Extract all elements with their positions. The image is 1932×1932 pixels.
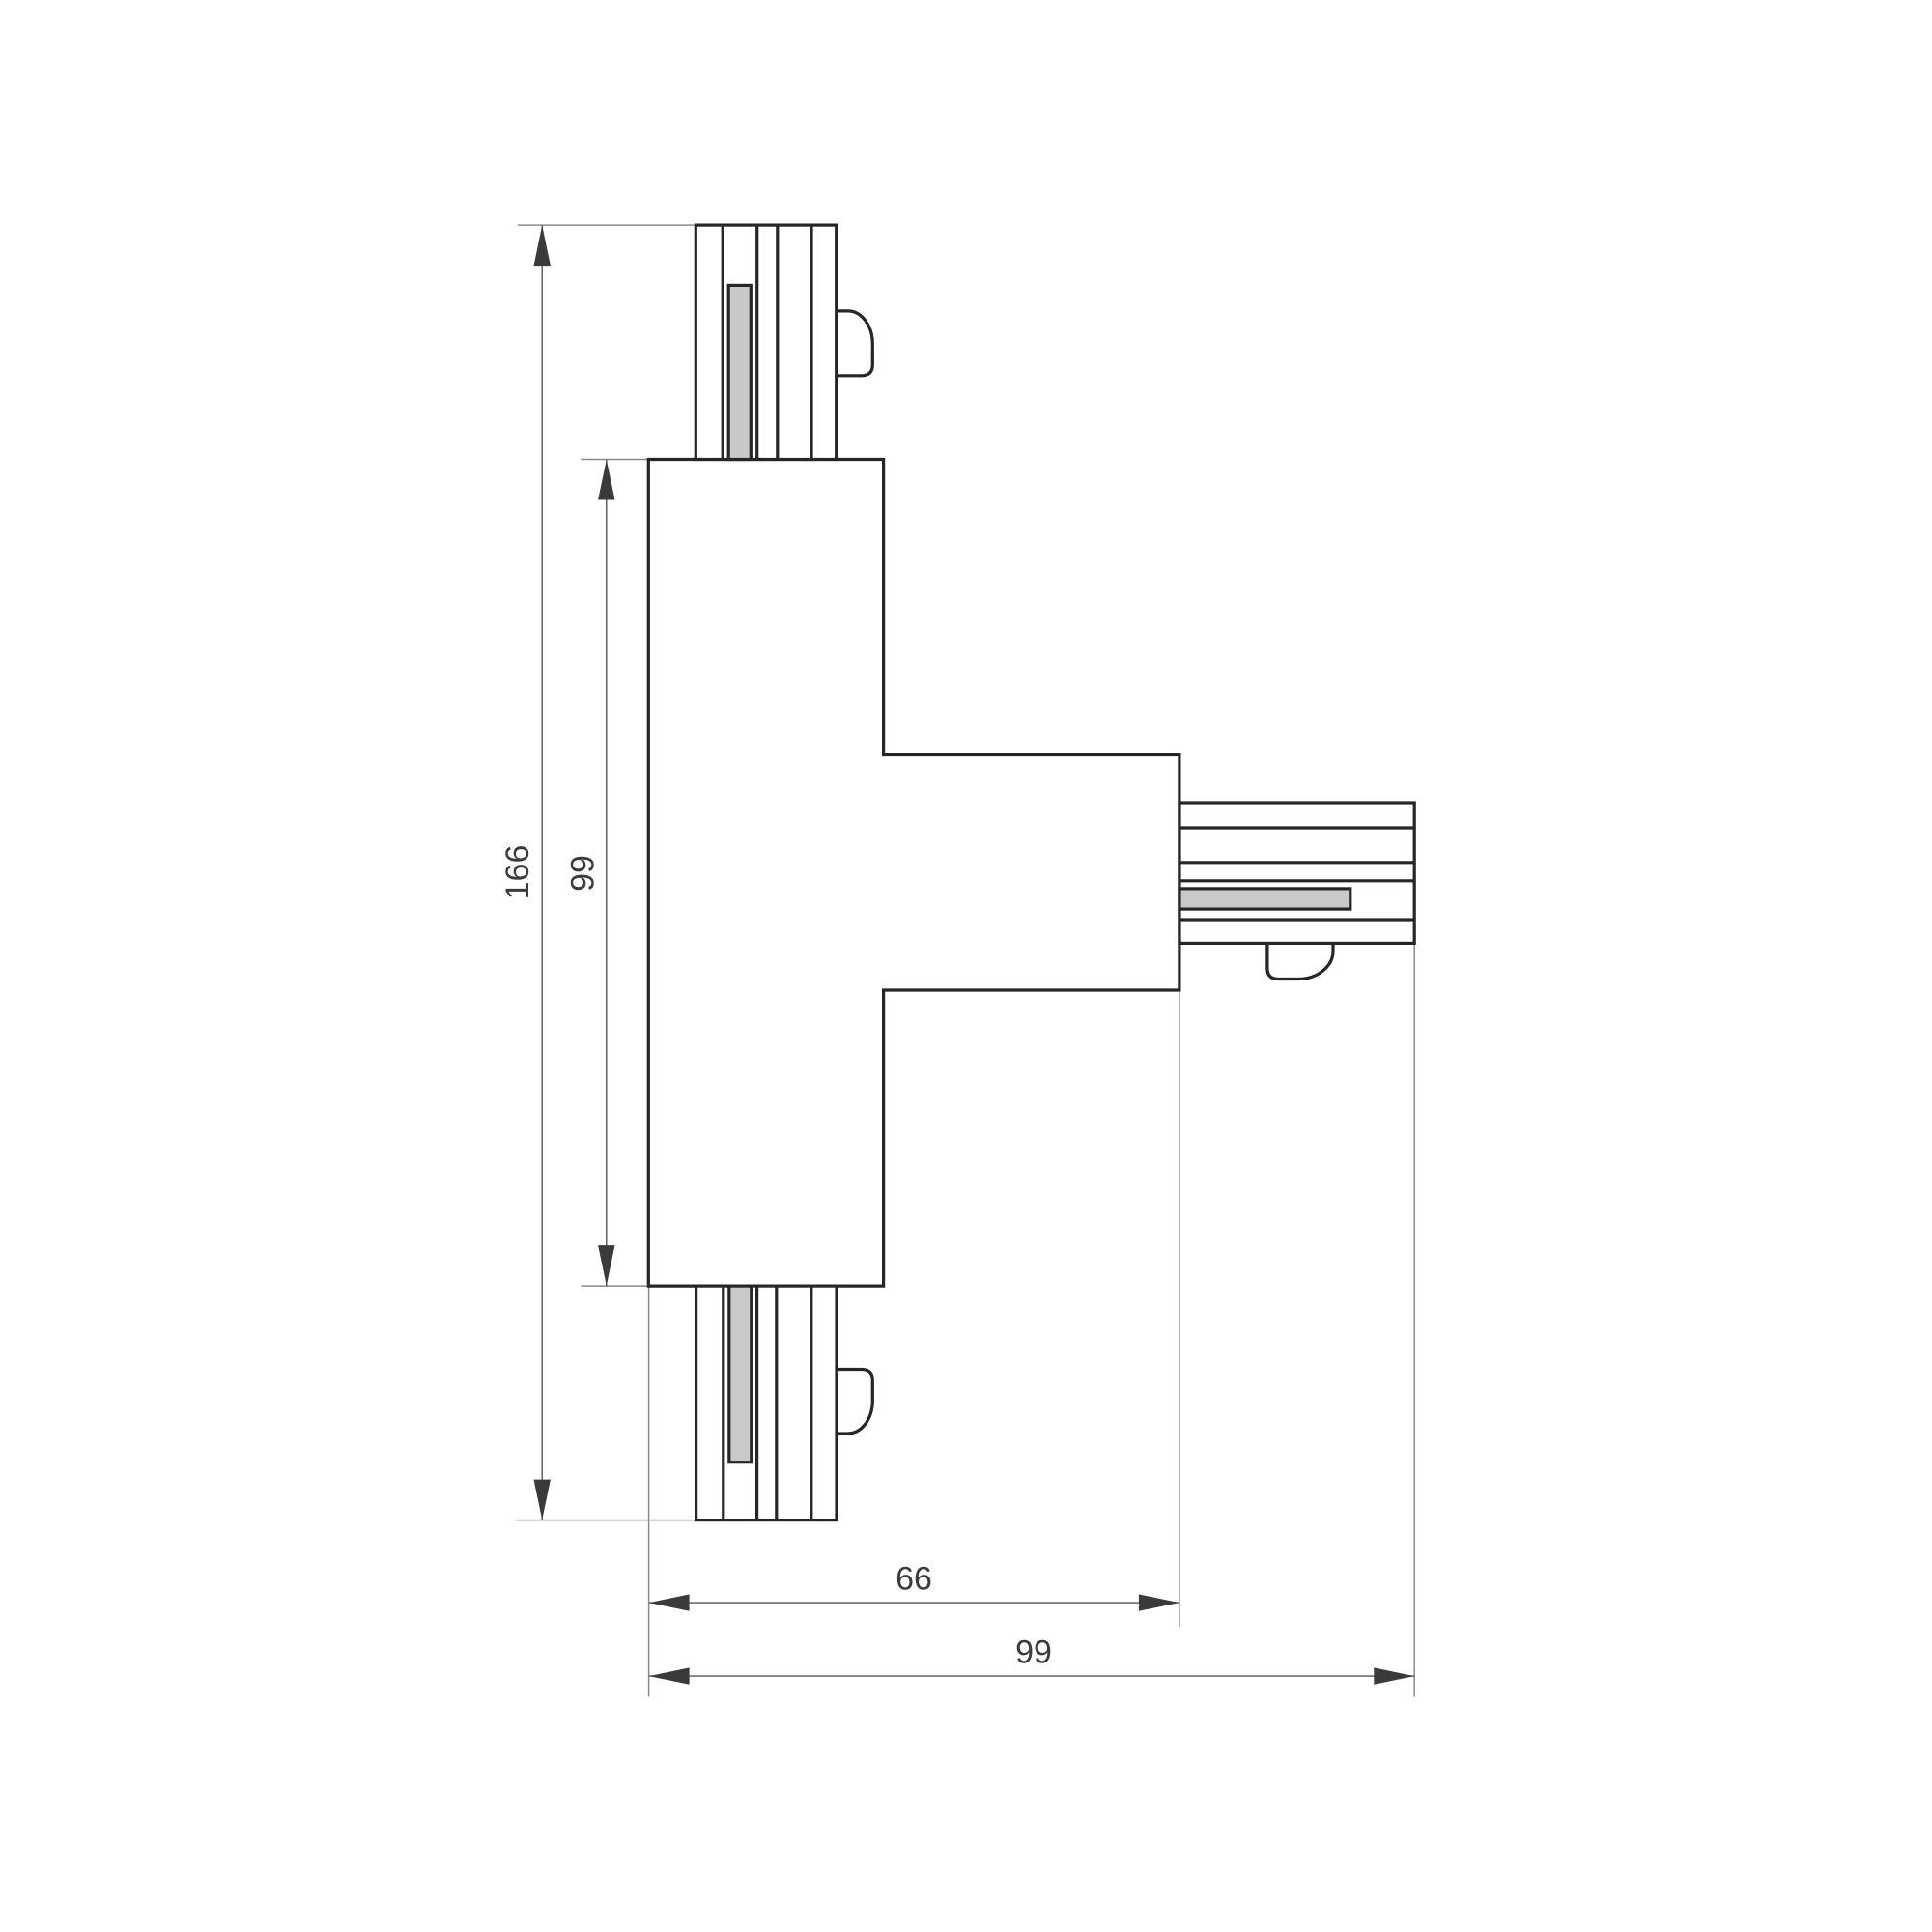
svg-text:99: 99 bbox=[1015, 1634, 1052, 1670]
svg-text:166: 166 bbox=[499, 845, 536, 900]
svg-text:99: 99 bbox=[564, 855, 601, 892]
svg-text:66: 66 bbox=[895, 1561, 932, 1598]
